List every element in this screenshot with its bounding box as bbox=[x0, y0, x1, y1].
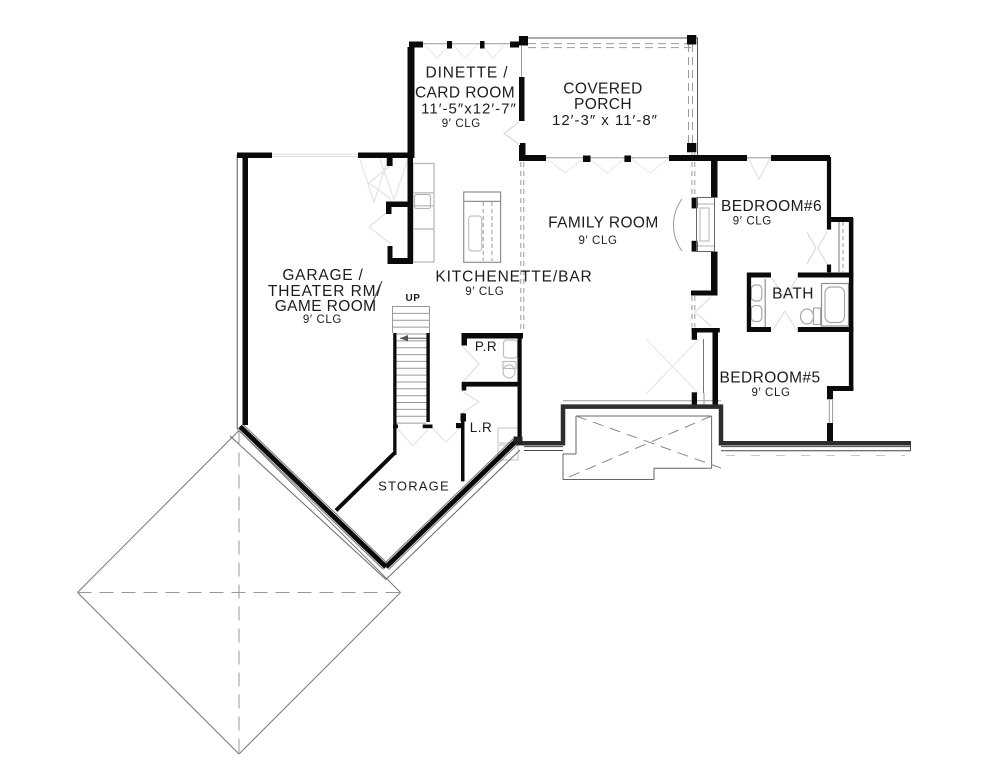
svg-text:CARD ROOM: CARD ROOM bbox=[415, 85, 515, 102]
svg-text:9′ CLG: 9′ CLG bbox=[733, 216, 772, 228]
svg-text:GAME ROOM: GAME ROOM bbox=[275, 298, 377, 315]
svg-text:KITCHENETTE/BAR: KITCHENETTE/BAR bbox=[435, 269, 592, 286]
svg-text:9′ CLG: 9′ CLG bbox=[465, 286, 504, 298]
svg-text:9′ CLG: 9′ CLG bbox=[579, 235, 618, 247]
svg-text:11′-5″x12′-7″: 11′-5″x12′-7″ bbox=[421, 100, 517, 117]
svg-text:BEDROOM#5: BEDROOM#5 bbox=[720, 370, 821, 387]
svg-text:9′ CLG: 9′ CLG bbox=[442, 118, 481, 130]
svg-text:L.R: L.R bbox=[470, 420, 493, 435]
svg-text:BEDROOM#6: BEDROOM#6 bbox=[721, 198, 822, 215]
svg-text:P.R: P.R bbox=[475, 339, 497, 354]
svg-text:GARAGE /: GARAGE / bbox=[282, 267, 363, 284]
svg-text:9′ CLG: 9′ CLG bbox=[303, 314, 342, 326]
svg-text:PORCH: PORCH bbox=[574, 96, 632, 113]
svg-text:9′ CLG: 9′ CLG bbox=[752, 387, 791, 399]
svg-text:BATH: BATH bbox=[772, 286, 814, 303]
svg-text:FAMILY ROOM: FAMILY ROOM bbox=[548, 214, 659, 231]
svg-text:12′-3″ x 11′-8″: 12′-3″ x 11′-8″ bbox=[552, 112, 658, 129]
svg-text:UP: UP bbox=[406, 293, 421, 304]
svg-text:DINETTE /: DINETTE / bbox=[425, 65, 508, 82]
svg-text:STORAGE: STORAGE bbox=[378, 479, 450, 494]
